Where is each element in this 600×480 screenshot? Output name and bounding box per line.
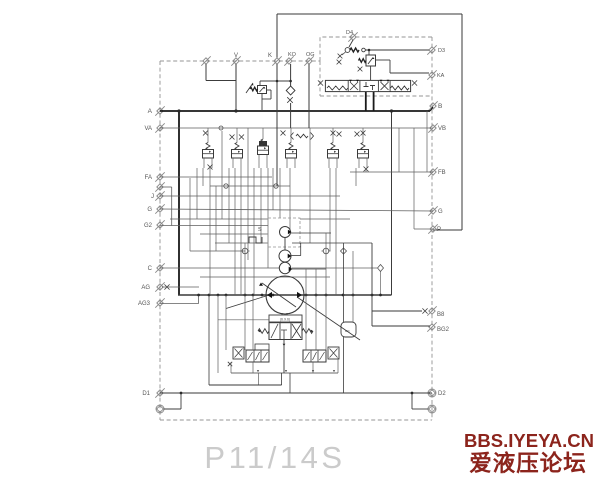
svg-text:FB: FB <box>438 170 446 176</box>
svg-text:AG3: AG3 <box>138 301 151 307</box>
svg-text:P: P <box>437 227 441 233</box>
svg-text:VB: VB <box>438 126 446 132</box>
svg-text:S: S <box>258 227 262 233</box>
svg-text:B8: B8 <box>437 312 445 318</box>
svg-text:FA: FA <box>145 175 152 181</box>
svg-text:C: C <box>148 266 153 272</box>
svg-text:AG: AG <box>141 285 150 291</box>
svg-text:VA: VA <box>144 126 152 132</box>
svg-text:K: K <box>268 53 272 59</box>
svg-text:爱液压论坛: 爱液压论坛 <box>469 450 587 476</box>
svg-text:(6.9.6): (6.9.6) <box>280 317 290 321</box>
svg-text:B: B <box>438 103 442 110</box>
svg-text:D1: D1 <box>142 391 150 397</box>
svg-text:G2: G2 <box>144 223 153 229</box>
svg-text:D3: D3 <box>438 48 445 54</box>
svg-text:KA: KA <box>437 73 445 79</box>
svg-text:BG2: BG2 <box>437 327 450 333</box>
svg-text:D2: D2 <box>438 391 446 397</box>
svg-text:G: G <box>147 207 152 213</box>
svg-text:P11/14S: P11/14S <box>204 440 345 475</box>
svg-text:BBS.IYEYA.CN: BBS.IYEYA.CN <box>464 430 594 451</box>
svg-text:G: G <box>438 209 443 215</box>
svg-text:J: J <box>151 194 154 200</box>
svg-text:A: A <box>148 108 153 115</box>
